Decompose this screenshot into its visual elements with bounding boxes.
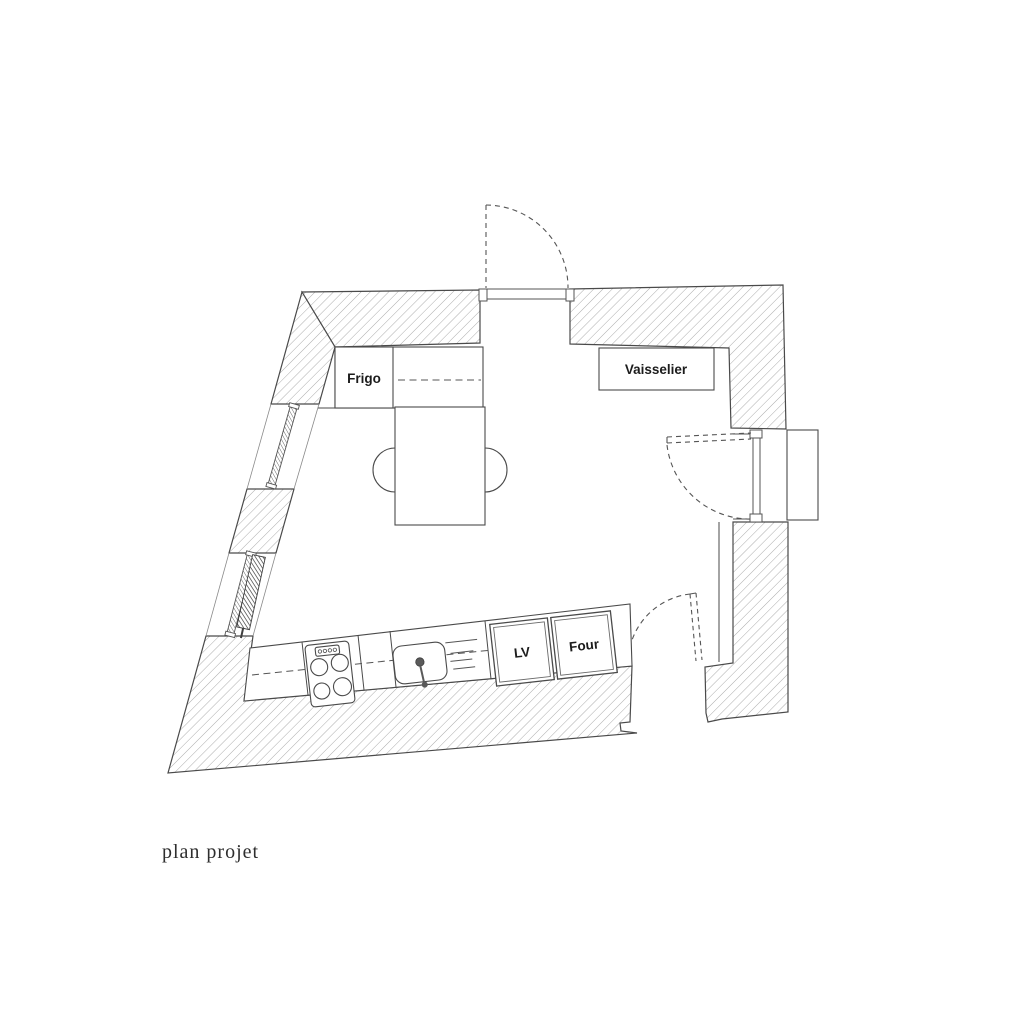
floor-plan-page: Frigo Vaisselier [0,0,1024,1024]
right-window-door [667,430,818,522]
bottom-door-arc [628,594,690,661]
right-window-cap-top [750,430,762,438]
oven-box: Four [551,611,618,679]
right-window-cap-bottom [750,514,762,522]
floor-plan-drawing: Frigo Vaisselier [0,0,1024,1024]
top-door [479,205,574,301]
dresser-label: Vaisselier [625,362,688,377]
right-door-leaf-b [667,439,751,443]
wall-right-lower [705,522,788,722]
window-upper [266,403,299,489]
table-top [395,407,485,525]
top-door-jamb-left [479,289,487,301]
right-window-frame [753,433,760,519]
bottom-door-leaf-a [690,594,696,661]
bottom-door-leaf-b [696,593,702,660]
right-window-exterior-ledge [787,430,818,520]
top-door-arc [486,205,568,288]
caption: plan projet [162,841,259,863]
right-door-arc [667,445,754,519]
faucet-knob [415,657,424,666]
seat-right [485,448,507,492]
top-door-sill [487,289,568,299]
top-door-jamb-right [566,289,574,301]
seat-left [373,448,395,492]
dishwasher-box: LV [490,618,555,686]
dining-table [373,407,507,525]
fridge-label: Frigo [347,371,381,386]
stove [305,641,356,708]
dishwasher-label: LV [513,644,531,661]
bottom-right-door [628,593,702,661]
upper-counter [318,347,483,408]
wall-left-pier2 [229,489,294,553]
